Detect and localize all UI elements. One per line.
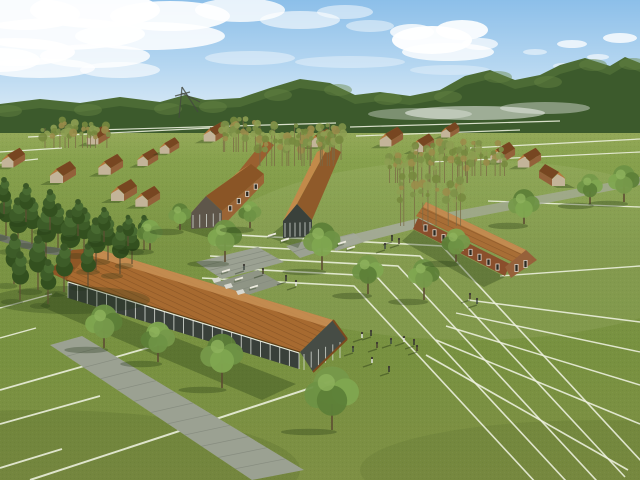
sapling-canopy	[460, 139, 466, 145]
sapling-canopy	[38, 133, 47, 142]
pine-canopy	[10, 233, 18, 241]
tree-canopy-highlight	[516, 194, 526, 204]
sapling-canopy	[330, 134, 334, 138]
sapling-canopy	[456, 176, 465, 185]
cloud	[317, 5, 373, 19]
sapling-canopy	[471, 141, 475, 145]
sapling-canopy	[277, 144, 283, 150]
sapling-canopy	[476, 140, 482, 146]
pine-canopy	[23, 183, 29, 189]
sapling-canopy	[326, 123, 330, 127]
person-head	[262, 268, 264, 270]
sapling-canopy	[222, 132, 226, 136]
sapling-canopy	[408, 171, 417, 180]
tree-shadow	[179, 387, 227, 393]
sapling-canopy	[432, 166, 437, 171]
tree-shadow	[187, 261, 229, 267]
sapling-canopy	[273, 139, 278, 144]
treeline-highlight	[484, 71, 512, 83]
sapling-canopy	[395, 158, 402, 165]
tree-canopy	[583, 183, 597, 197]
sapling-canopy	[235, 129, 240, 134]
person-head	[384, 243, 386, 245]
sapling-canopy	[290, 131, 295, 136]
cloud	[80, 62, 160, 78]
cloud	[557, 40, 587, 48]
sapling-canopy	[490, 159, 496, 165]
sapling-canopy	[254, 120, 261, 127]
cloud	[603, 33, 637, 43]
tree-canopy	[615, 176, 633, 194]
person-head	[390, 338, 392, 340]
tree-shadow	[588, 201, 628, 207]
treeline-highlight	[264, 89, 292, 101]
sapling-canopy	[307, 130, 314, 137]
sapling-canopy	[442, 188, 450, 196]
cloud	[205, 51, 295, 65]
sapling-canopy	[419, 163, 423, 167]
sapling-canopy	[243, 116, 249, 122]
mist	[368, 108, 472, 120]
sapling-canopy	[56, 129, 61, 134]
tree-canopy-highlight	[616, 170, 626, 180]
person-head	[476, 298, 478, 300]
treeline-highlight	[579, 59, 607, 71]
sapling-canopy	[495, 140, 501, 146]
tree-canopy-highlight	[244, 204, 251, 211]
sapling-canopy	[426, 193, 430, 197]
tree-canopy	[210, 349, 234, 373]
tree-canopy	[312, 235, 333, 256]
person-head	[361, 332, 363, 334]
person-head	[376, 342, 378, 344]
tree-canopy-highlight	[174, 206, 181, 213]
tree-canopy	[359, 266, 377, 284]
treeline-highlight	[324, 84, 352, 96]
tree-canopy	[244, 209, 257, 222]
sapling-canopy	[414, 151, 418, 155]
person-head	[469, 293, 471, 295]
sapling-canopy	[79, 132, 83, 136]
tree-canopy	[317, 385, 347, 415]
person-head	[391, 235, 393, 237]
tree-canopy-highlight	[312, 228, 324, 240]
sapling-canopy	[293, 140, 300, 147]
sapling-canopy	[453, 199, 457, 203]
cloud	[523, 49, 547, 55]
sapling-canopy	[419, 152, 423, 156]
tree-canopy-highlight	[449, 233, 458, 242]
sapling-canopy	[388, 165, 393, 170]
sapling-canopy	[412, 142, 420, 150]
tree-canopy-highlight	[143, 223, 151, 231]
tree-canopy-highlight	[583, 177, 591, 185]
sapling-canopy	[278, 139, 283, 144]
pine-canopy	[101, 207, 106, 212]
sapling-canopy	[461, 145, 465, 149]
pine-canopy	[60, 243, 68, 251]
sapling-canopy	[460, 155, 467, 162]
tree-shadow	[118, 249, 154, 255]
tree-shadow	[282, 269, 326, 275]
sapling-canopy	[479, 153, 483, 157]
sapling-canopy	[399, 185, 404, 190]
sapling-canopy	[223, 136, 228, 141]
sapling-canopy	[447, 156, 455, 164]
sapling-canopy	[320, 124, 324, 128]
tree-canopy	[448, 239, 464, 255]
sapling-canopy	[264, 142, 269, 147]
sapling-canopy	[318, 136, 324, 142]
mist	[500, 102, 590, 114]
sapling-canopy	[93, 135, 98, 140]
sapling-canopy	[410, 192, 416, 198]
sapling-canopy	[296, 134, 300, 138]
cloud	[390, 24, 434, 40]
sapling-canopy	[483, 151, 488, 156]
treeline-highlight	[154, 103, 182, 115]
sapling-canopy	[471, 147, 475, 151]
sapling-canopy	[82, 122, 88, 128]
sapling-canopy	[411, 181, 420, 190]
pine-canopy	[34, 235, 42, 243]
tree-canopy-highlight	[94, 310, 106, 322]
sapling-canopy	[425, 173, 431, 179]
person-head	[371, 357, 373, 359]
sapling-canopy	[255, 128, 262, 135]
person-head	[285, 275, 287, 277]
sapling-canopy	[401, 162, 407, 168]
tree-canopy	[215, 232, 234, 251]
sapling-canopy	[446, 180, 454, 188]
sapling-canopy	[81, 127, 86, 132]
sapling-canopy	[307, 141, 311, 145]
sapling-canopy	[499, 147, 504, 152]
pine-canopy	[45, 259, 52, 266]
sapling-canopy	[468, 151, 477, 160]
sapling-canopy	[234, 123, 240, 129]
sapling-canopy	[317, 142, 322, 147]
pine-shadow	[9, 221, 27, 227]
sapling-canopy	[41, 128, 45, 132]
treeline-highlight	[434, 91, 462, 103]
tree-shadow	[150, 229, 184, 235]
sapling-canopy	[423, 181, 432, 190]
tree-canopy-highlight	[211, 340, 225, 354]
sapling-canopy	[242, 134, 249, 141]
sapling-canopy	[475, 145, 483, 153]
sapling-canopy	[431, 157, 436, 162]
sapling-canopy	[463, 165, 470, 172]
sapling-canopy	[419, 196, 425, 202]
sapling-canopy	[106, 132, 111, 137]
tree-canopy-highlight	[149, 327, 160, 338]
sapling-canopy	[321, 132, 326, 137]
person-head	[243, 264, 245, 266]
sapling-canopy	[446, 141, 455, 150]
pine-shadow	[115, 263, 133, 269]
cloud	[346, 20, 394, 32]
person-head	[403, 336, 405, 338]
sapling-canopy	[399, 173, 406, 180]
sapling-canopy	[501, 160, 508, 167]
sapling-canopy	[396, 189, 401, 194]
tree-shadow	[220, 227, 254, 233]
tree-shadow	[120, 361, 162, 367]
sapling-canopy	[335, 135, 344, 144]
pine-canopy	[47, 189, 53, 195]
treeline-highlight	[534, 76, 562, 88]
sapling-canopy	[483, 159, 490, 166]
person-head	[352, 346, 354, 348]
person-head	[413, 339, 415, 341]
sapling-canopy	[237, 117, 242, 122]
tree-canopy	[94, 317, 115, 338]
sapling-canopy	[417, 156, 424, 163]
sapling-canopy	[435, 188, 439, 192]
sapling-canopy	[294, 124, 298, 128]
sapling-canopy	[243, 123, 247, 127]
sapling-canopy	[397, 164, 402, 169]
pine-canopy	[16, 251, 24, 259]
tree-canopy	[148, 334, 167, 353]
architectural-rendering-image	[0, 0, 640, 480]
tree-shadow	[488, 223, 528, 229]
sapling-canopy	[63, 121, 67, 125]
tree-canopy	[174, 211, 187, 224]
tree-canopy-highlight	[318, 374, 335, 391]
sapling-canopy	[254, 144, 263, 153]
sapling-canopy	[262, 135, 269, 142]
sapling-canopy	[457, 185, 465, 193]
tree-shadow	[332, 293, 372, 299]
sapling-canopy	[270, 122, 278, 130]
pine-shadow	[33, 229, 51, 235]
tree-shadow	[388, 299, 428, 305]
tree-canopy	[415, 270, 433, 288]
pine-canopy	[141, 215, 146, 220]
sapling-canopy	[444, 149, 448, 153]
sapling-canopy	[309, 136, 314, 141]
sapling-canopy	[418, 189, 423, 194]
sapling-canopy	[457, 193, 466, 202]
cloud	[462, 38, 498, 50]
sapling-canopy	[270, 131, 275, 136]
person-head	[388, 366, 390, 368]
sapling-canopy	[442, 196, 450, 204]
sapling-canopy	[49, 133, 55, 139]
sapling-canopy	[432, 175, 441, 184]
cloud	[295, 56, 405, 68]
sapling-canopy	[262, 147, 268, 153]
sapling-canopy	[430, 143, 435, 148]
sapling-canopy	[397, 197, 403, 203]
pine-shadow	[62, 235, 79, 241]
cloud	[587, 54, 609, 60]
treeline-highlight	[199, 101, 227, 113]
pine-canopy	[75, 199, 81, 205]
person-head	[398, 238, 400, 240]
tree-canopy	[515, 200, 533, 218]
cloud	[436, 20, 488, 40]
tree-shadow	[422, 261, 460, 267]
sapling-canopy	[284, 145, 290, 151]
person-head	[370, 330, 372, 332]
pine-canopy	[126, 215, 131, 220]
person-head	[295, 280, 297, 282]
tree-shadow	[281, 429, 337, 435]
pine-shadow	[70, 285, 89, 291]
person-head	[416, 345, 418, 347]
pine-canopy	[1, 177, 7, 183]
scene-svg	[0, 0, 640, 480]
pine-shadow	[30, 303, 50, 309]
tree-shadow	[64, 347, 108, 353]
sapling-canopy	[413, 157, 418, 162]
sapling-canopy	[296, 128, 301, 133]
sapling-canopy	[69, 129, 77, 137]
sapling-canopy	[246, 127, 251, 132]
treeline-highlight	[374, 93, 402, 105]
sapling-canopy	[428, 149, 435, 156]
tree-canopy-highlight	[360, 260, 370, 270]
sapling-canopy	[384, 158, 391, 165]
pine-shadow	[88, 241, 104, 247]
treeline-highlight	[74, 104, 102, 116]
